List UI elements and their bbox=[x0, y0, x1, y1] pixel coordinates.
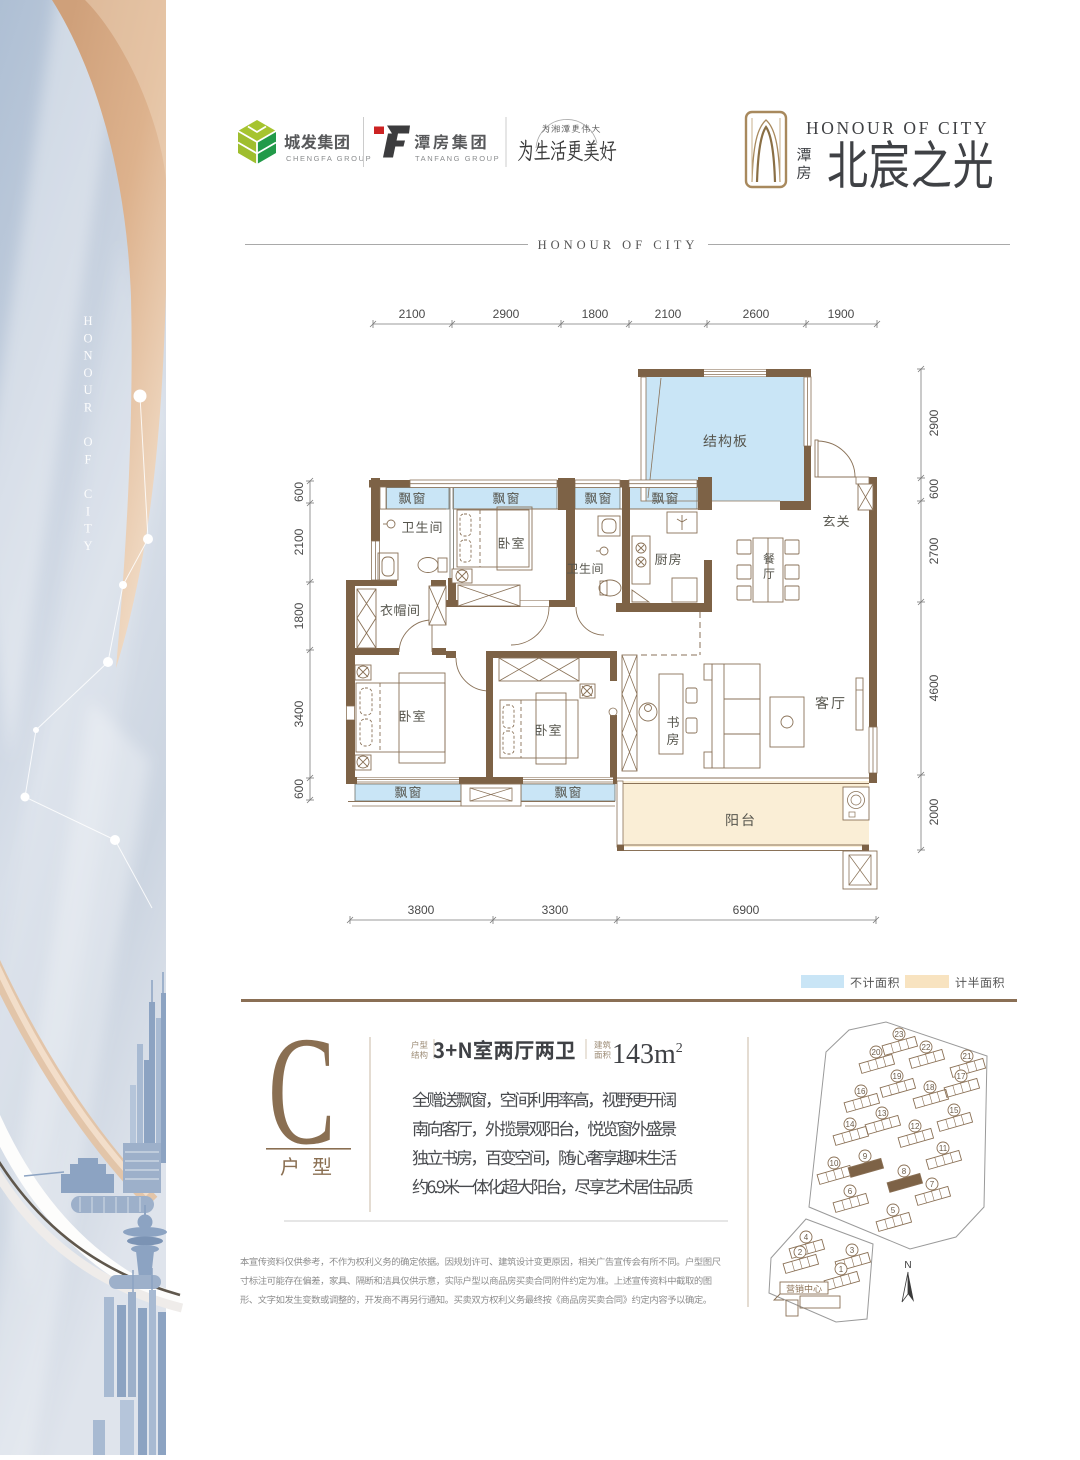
svg-text:3: 3 bbox=[850, 1246, 855, 1255]
svg-text:O: O bbox=[83, 366, 92, 380]
svg-text:23: 23 bbox=[895, 1030, 904, 1039]
svg-text:TANFANG GROUP: TANFANG GROUP bbox=[415, 154, 500, 163]
svg-text:O: O bbox=[83, 331, 92, 345]
svg-text:2900: 2900 bbox=[493, 307, 520, 321]
svg-text:12: 12 bbox=[911, 1122, 920, 1131]
svg-text:9: 9 bbox=[863, 1152, 868, 1161]
svg-text:HONOUR OF CITY: HONOUR OF CITY bbox=[806, 118, 989, 138]
svg-text:22: 22 bbox=[922, 1043, 931, 1052]
svg-text:U: U bbox=[83, 383, 92, 397]
svg-text:2100: 2100 bbox=[655, 307, 682, 321]
svg-text:11: 11 bbox=[939, 1144, 948, 1153]
svg-text:600: 600 bbox=[292, 482, 306, 502]
svg-text:1800: 1800 bbox=[292, 602, 306, 629]
svg-text:F: F bbox=[85, 452, 92, 466]
svg-text:2900: 2900 bbox=[927, 409, 941, 436]
svg-text:20: 20 bbox=[872, 1048, 881, 1057]
svg-text:2100: 2100 bbox=[399, 307, 426, 321]
svg-text:2600: 2600 bbox=[743, 307, 770, 321]
svg-text:HONOUR OF CITY: HONOUR OF CITY bbox=[538, 238, 699, 252]
svg-text:8: 8 bbox=[902, 1167, 907, 1176]
svg-text:T: T bbox=[84, 522, 92, 536]
svg-text:1800: 1800 bbox=[582, 307, 609, 321]
svg-text:15: 15 bbox=[950, 1106, 959, 1115]
svg-text:7: 7 bbox=[930, 1180, 935, 1189]
svg-text:3400: 3400 bbox=[292, 700, 306, 727]
svg-text:10: 10 bbox=[830, 1159, 839, 1168]
svg-text:3800: 3800 bbox=[408, 903, 435, 917]
svg-text:H: H bbox=[83, 314, 92, 328]
svg-text:I: I bbox=[86, 504, 90, 518]
svg-text:2000: 2000 bbox=[927, 798, 941, 825]
svg-text:2100: 2100 bbox=[292, 528, 306, 555]
svg-text:4: 4 bbox=[804, 1233, 809, 1242]
svg-text:4600: 4600 bbox=[927, 674, 941, 701]
svg-text:16: 16 bbox=[857, 1087, 866, 1096]
svg-text:Y: Y bbox=[83, 539, 92, 553]
svg-text:143m2: 143m2 bbox=[612, 1039, 683, 1070]
svg-text:600: 600 bbox=[292, 779, 306, 799]
svg-text:6900: 6900 bbox=[733, 903, 760, 917]
svg-text:21: 21 bbox=[963, 1052, 972, 1061]
svg-text:600: 600 bbox=[927, 479, 941, 499]
svg-text:14: 14 bbox=[846, 1120, 855, 1129]
svg-text:1900: 1900 bbox=[828, 307, 855, 321]
svg-text:C: C bbox=[268, 1005, 336, 1177]
svg-text:2700: 2700 bbox=[927, 537, 941, 564]
svg-text:1: 1 bbox=[839, 1265, 844, 1274]
svg-text:18: 18 bbox=[926, 1083, 935, 1092]
svg-text:R: R bbox=[84, 401, 93, 415]
svg-text:6: 6 bbox=[848, 1187, 853, 1196]
svg-text:17: 17 bbox=[957, 1072, 966, 1081]
svg-text:N: N bbox=[83, 349, 92, 363]
svg-text:5: 5 bbox=[891, 1206, 896, 1215]
svg-text:3300: 3300 bbox=[542, 903, 569, 917]
svg-text:C: C bbox=[84, 487, 92, 501]
svg-text:CHENGFA GROUP: CHENGFA GROUP bbox=[286, 154, 372, 163]
svg-text:N: N bbox=[904, 1260, 911, 1271]
svg-text:13: 13 bbox=[878, 1109, 887, 1118]
svg-text:19: 19 bbox=[893, 1072, 902, 1081]
svg-text:O: O bbox=[83, 435, 92, 449]
svg-text:2: 2 bbox=[798, 1248, 803, 1257]
